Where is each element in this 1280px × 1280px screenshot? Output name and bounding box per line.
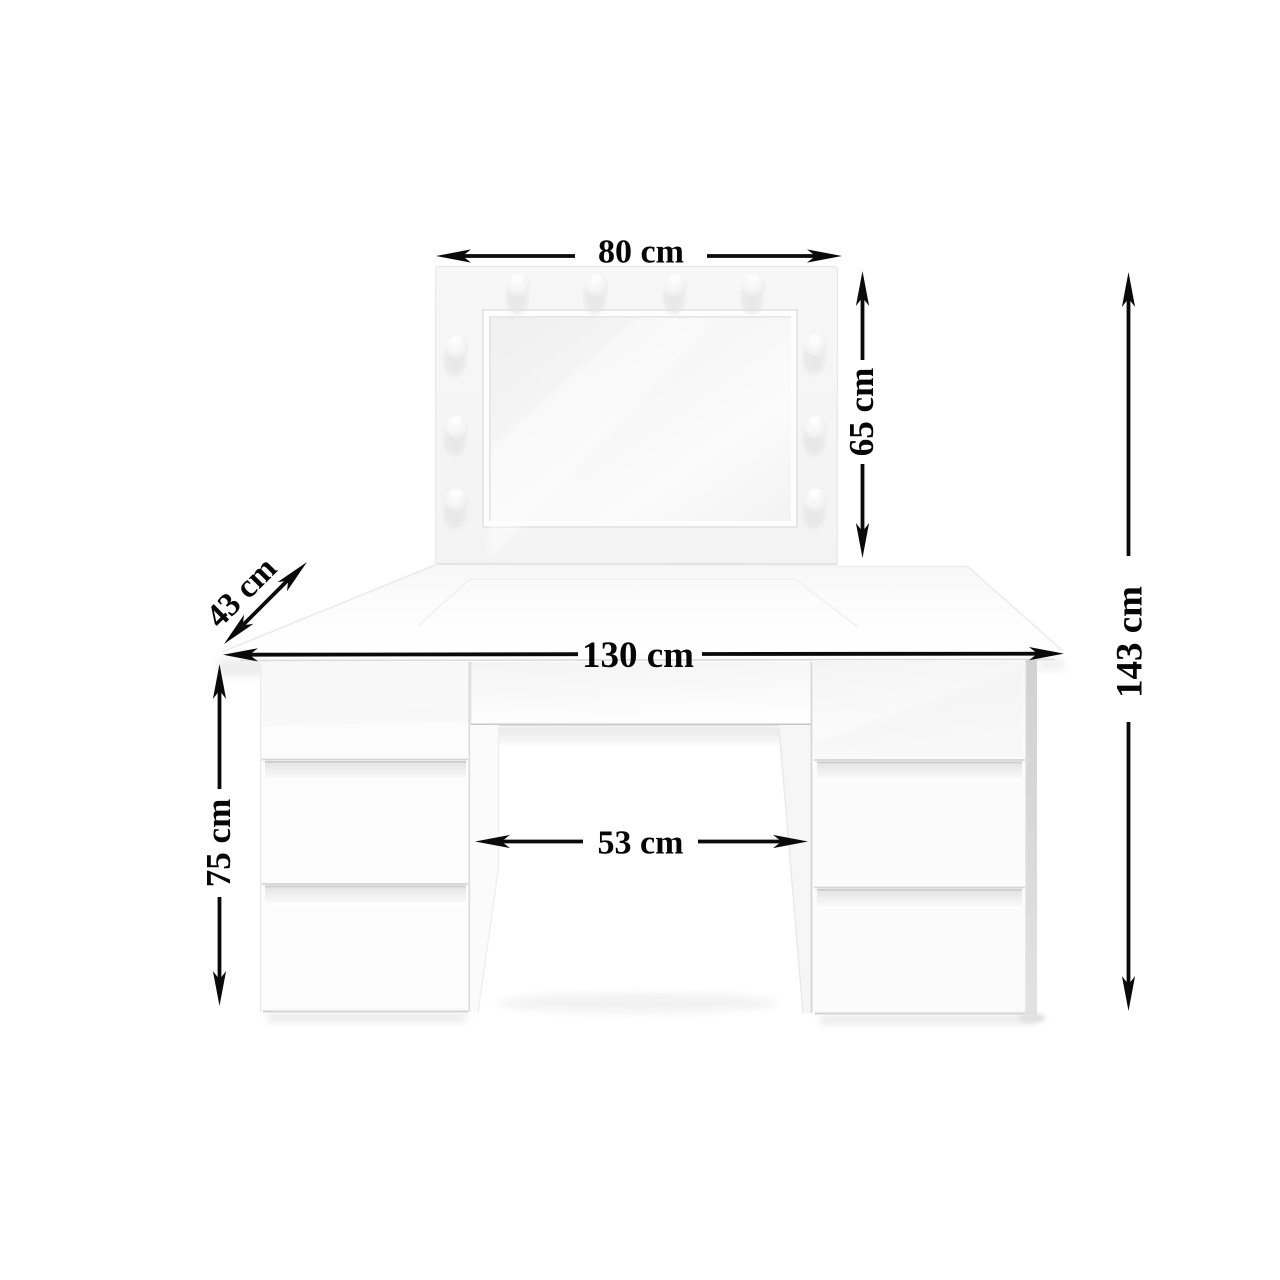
svg-text:53 cm: 53 cm bbox=[598, 825, 684, 862]
svg-text:80 cm: 80 cm bbox=[598, 234, 684, 271]
svg-text:65 cm: 65 cm bbox=[842, 368, 881, 456]
svg-text:130 cm: 130 cm bbox=[582, 635, 694, 676]
svg-text:75 cm: 75 cm bbox=[199, 799, 238, 887]
svg-text:143 cm: 143 cm bbox=[1110, 586, 1151, 698]
